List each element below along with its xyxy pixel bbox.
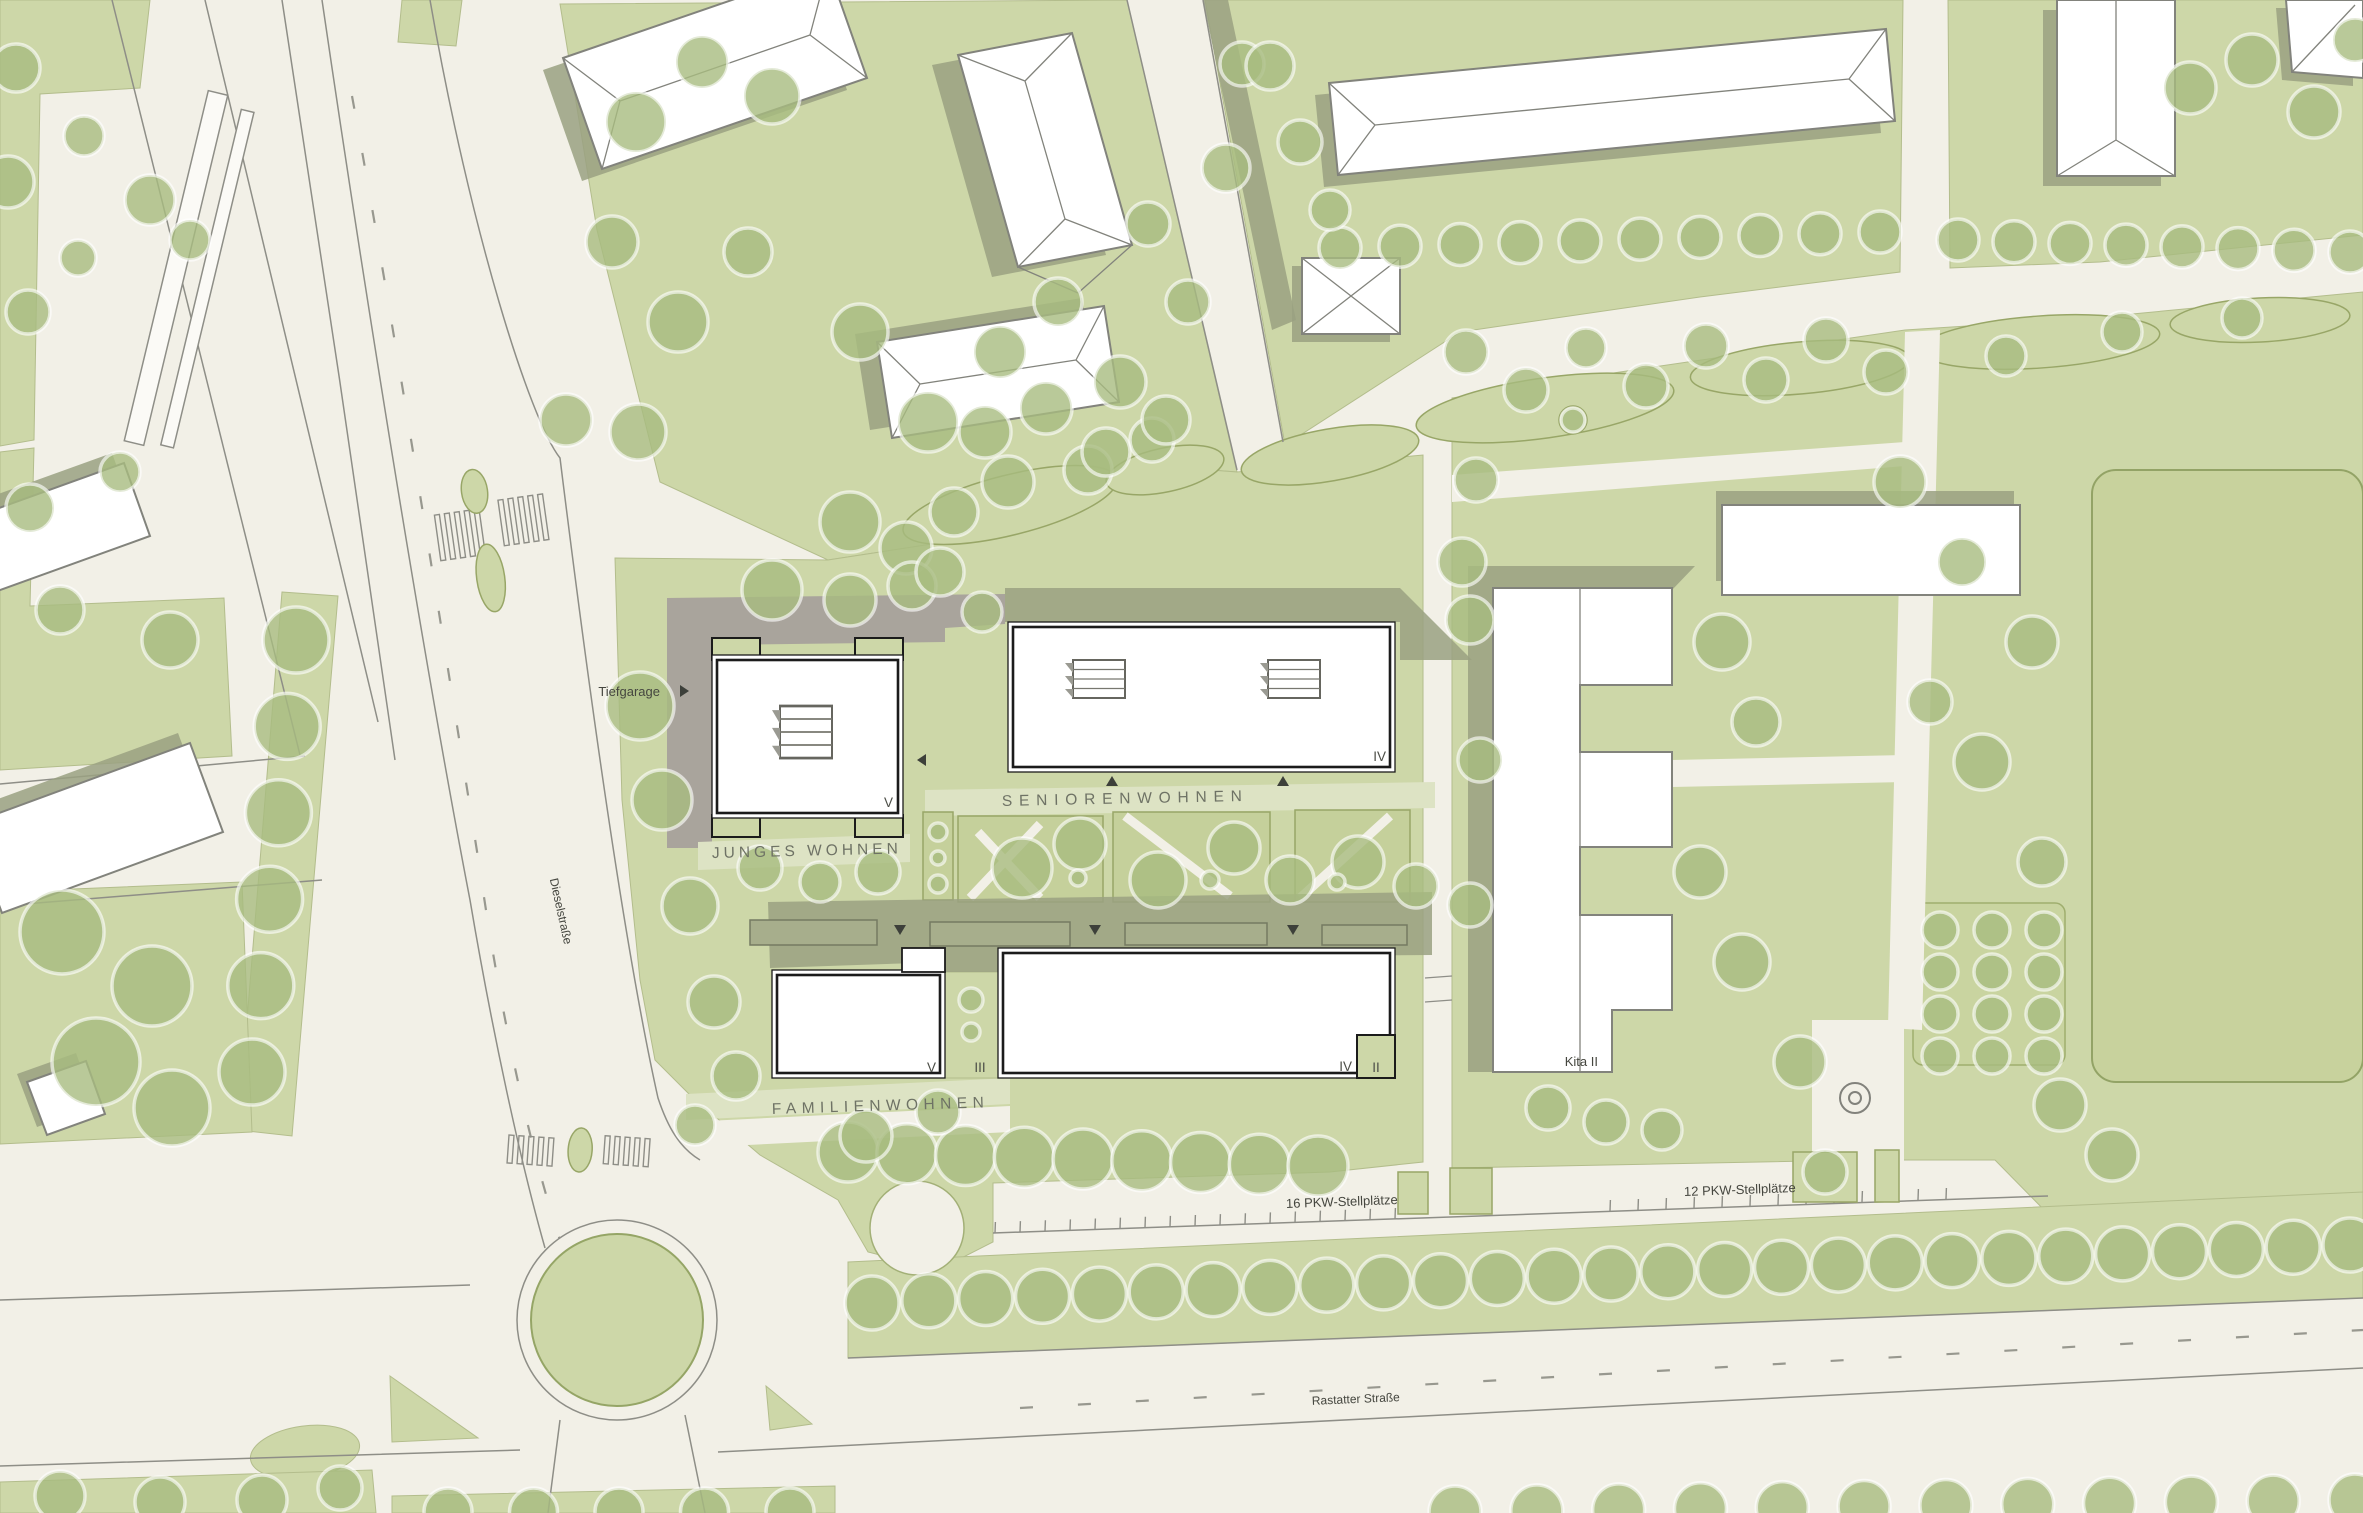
familienwohnen-west-building	[772, 970, 945, 1078]
fw-east-floors-label: IV	[1339, 1059, 1352, 1074]
fw-annex-floors-label: II	[1372, 1060, 1380, 1075]
fw-mid-floors-label: III	[974, 1060, 985, 1075]
dieselstrasse-label: Dieselstraße	[547, 877, 575, 946]
site-plan-canvas: JUNGES WOHNEN SENIORENWOHNEN FAMILIENWOH…	[0, 0, 2363, 1513]
roundabout	[517, 1220, 717, 1420]
parking-16-label: 16 PKW-Stellplätze	[1286, 1192, 1398, 1211]
jw-floors-label: V	[884, 795, 893, 810]
kita-label: Kita II	[1565, 1054, 1598, 1069]
tiefgarage-label: Tiefgarage	[598, 684, 660, 699]
familienwohnen-row	[750, 892, 1432, 1078]
sports-field	[2092, 470, 2363, 1082]
familienwohnen-connector	[902, 948, 945, 972]
fountain	[1840, 1083, 1870, 1113]
familienwohnen-east-building	[998, 948, 1395, 1078]
tram-stop	[124, 91, 254, 448]
site-plan: JUNGES WOHNEN SENIORENWOHNEN FAMILIENWOH…	[0, 0, 2363, 1513]
crosswalk-north	[429, 460, 558, 618]
kita-building	[1493, 588, 1672, 1072]
fw-west-floors-label: V	[927, 1060, 936, 1075]
sw-floors-label: IV	[1373, 749, 1386, 764]
parking-12-label: 12 PKW-Stellplätze	[1684, 1180, 1796, 1199]
rastatter-strasse-label: Rastatter Straße	[1312, 1390, 1401, 1408]
